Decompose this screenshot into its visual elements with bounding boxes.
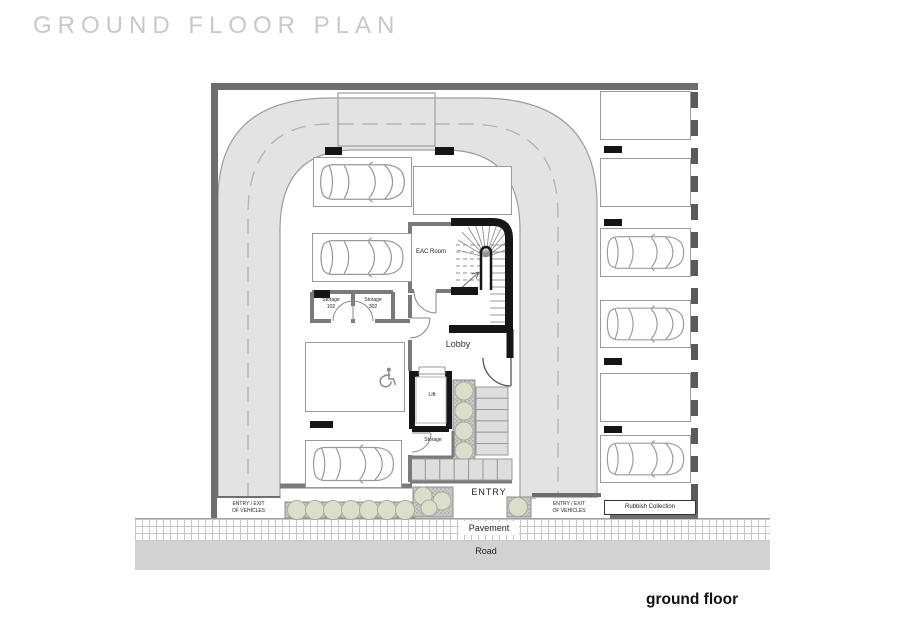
column-marker xyxy=(604,219,622,226)
eac-room-label: EAC Room xyxy=(405,248,457,256)
storage-102-label: Storage 102 xyxy=(311,297,351,311)
plan-graphics xyxy=(0,0,900,626)
pavement-label: Pavement xyxy=(459,521,519,535)
column-marker xyxy=(604,146,622,153)
column-marker xyxy=(435,147,454,155)
rubbish-collection-room: Rubbish Collection xyxy=(604,500,696,515)
parking-space xyxy=(600,300,691,348)
parking-space xyxy=(600,228,691,277)
vehicle-entry-right-label: ENTRY / EXIT OF VEHICLES xyxy=(552,501,585,516)
storage-small-label: Storage xyxy=(413,437,453,444)
parking-space xyxy=(305,440,402,488)
site-boundary-left xyxy=(211,83,218,518)
storage-302-label: Storage 302 xyxy=(353,297,393,311)
car-icon xyxy=(601,229,690,276)
road-label: Road xyxy=(461,545,511,557)
lift-label: Lift xyxy=(417,392,447,399)
wheelchair-icon xyxy=(376,366,398,388)
car-icon xyxy=(313,234,411,281)
floor-plan-sheet: GROUND FLOOR PLAN xyxy=(0,0,900,626)
lobby-label: Lobby xyxy=(438,338,478,350)
parking-space xyxy=(600,91,691,140)
car-icon xyxy=(601,436,690,482)
column-marker xyxy=(325,147,342,155)
column-marker xyxy=(604,358,622,365)
parking-space xyxy=(600,435,691,483)
rubbish-collection-label: Rubbish Collection xyxy=(625,503,675,511)
car-icon xyxy=(601,301,690,347)
parking-space xyxy=(600,373,691,422)
vehicle-entry-left-label: ENTRY / EXIT OF VEHICLES xyxy=(232,501,265,516)
parking-space xyxy=(600,158,691,207)
car-icon xyxy=(314,158,411,206)
car-icon xyxy=(306,441,401,487)
entry-label: ENTRY xyxy=(467,486,511,498)
parking-space xyxy=(413,166,512,215)
parking-space-accessible xyxy=(305,342,405,412)
column-marker xyxy=(310,421,333,428)
vehicle-entry-left-box: ENTRY / EXIT OF VEHICLES xyxy=(217,498,280,518)
vehicle-entry-right-box: ENTRY / EXIT OF VEHICLES xyxy=(536,498,602,518)
driveway xyxy=(218,93,597,498)
column-marker xyxy=(604,426,622,433)
site-boundary-top xyxy=(211,83,698,90)
sheet-caption: ground floor xyxy=(646,590,738,611)
parking-space xyxy=(312,233,412,282)
parking-space xyxy=(313,157,412,207)
